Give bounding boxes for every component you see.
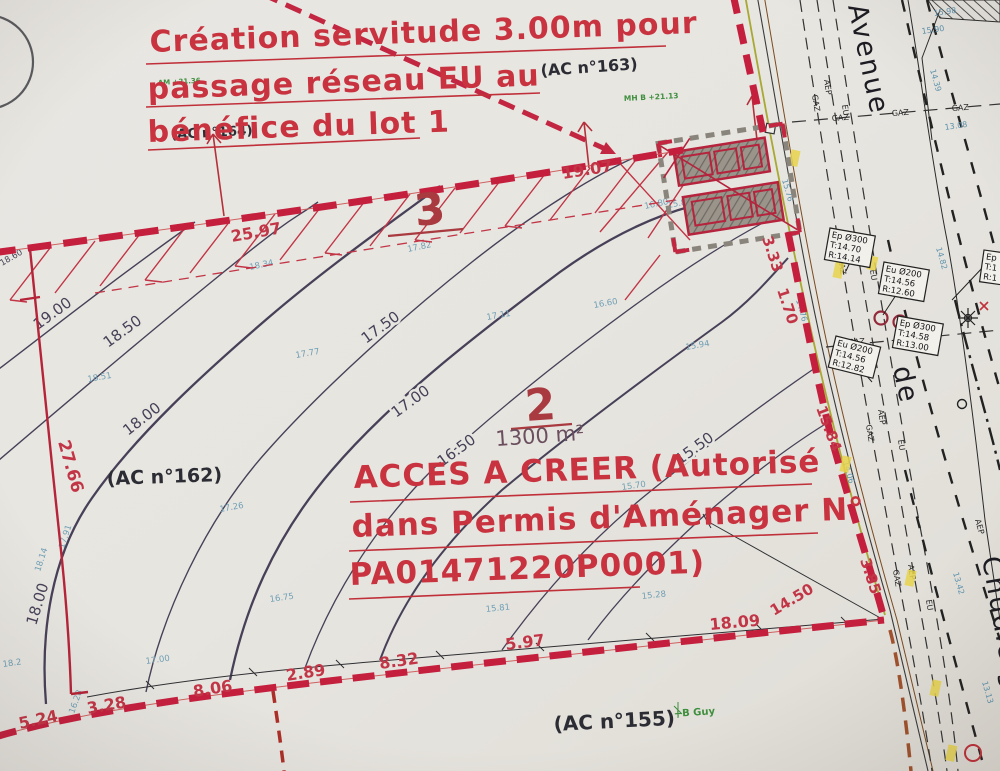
eu-label: EU xyxy=(868,269,879,281)
eu-label: EU xyxy=(896,439,907,451)
parcel-number-3: 3 xyxy=(412,183,448,237)
eu-label: EU xyxy=(924,599,935,611)
utility-box-line: R:1 xyxy=(983,272,998,284)
streetlight-icon xyxy=(958,308,978,328)
survey-plan-photo: 19.00 18.50 18.00 17.50 17.00 16.50 15.5… xyxy=(0,0,1000,771)
utility-box: Ep T:1 R:1 xyxy=(980,250,1000,287)
gaz-label: GAZ xyxy=(832,113,850,123)
gaz-label: GAZ xyxy=(952,103,970,113)
plan-canvas: 19.00 18.50 18.00 17.50 17.00 16.50 15.5… xyxy=(0,0,1000,771)
cadastre-ref-162: (AC n°162) xyxy=(106,464,222,490)
